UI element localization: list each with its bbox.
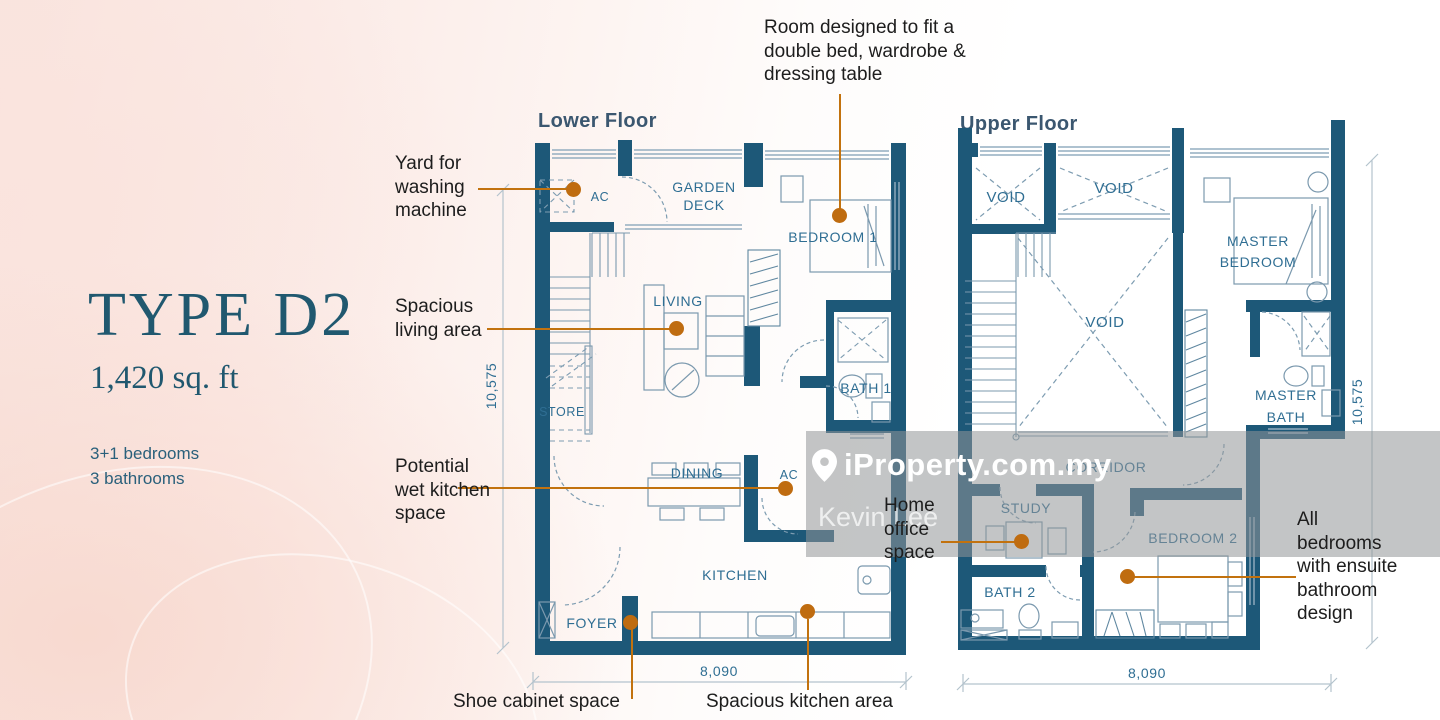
callout-dot-yard — [566, 182, 581, 197]
room-label-ac-kitchen: AC — [780, 468, 799, 482]
watermark-logo: iProperty.com.my — [812, 447, 1112, 483]
map-pin-icon — [812, 449, 837, 482]
annotation-wet-kitchen: Potential wet kitchen space — [395, 455, 495, 526]
callout-dot-shoe — [623, 615, 638, 630]
annotation-kitchen-area: Spacious kitchen area — [706, 690, 893, 714]
callout-line-kitchen-area — [807, 619, 809, 690]
dimension-width-lower: 8,090 — [700, 663, 738, 679]
room-label-master-bedroom: MASTER — [1227, 233, 1289, 249]
annotation-room-fit: Room designed to fit a double bed, wardr… — [764, 16, 976, 87]
floor-plan-lower: AC GARDEN DECK BEDROOM 1 LIVING STORE BA… — [483, 140, 912, 690]
room-label-master-bath: MASTER — [1255, 387, 1317, 403]
room-label-master-bath: BATH — [1267, 409, 1306, 425]
callout-dot-home-office — [1014, 534, 1029, 549]
callout-dot-wet-kitchen — [778, 481, 793, 496]
callout-dot-kitchen-area — [800, 604, 815, 619]
dimension-height-lower: 10,575 — [483, 363, 499, 409]
callout-line-yard — [478, 188, 568, 190]
room-label-garden-deck: DECK — [683, 197, 724, 213]
floorplan-page: TYPE D2 1,420 sq. ft 3+1 bedrooms 3 bath… — [0, 0, 1440, 720]
room-label-ac-yard: AC — [591, 190, 610, 204]
annotation-living: Spacious living area — [395, 295, 495, 342]
room-label-kitchen: KITCHEN — [702, 567, 768, 583]
callout-line-wet-kitchen — [458, 487, 780, 489]
room-label-bath1: BATH 1 — [840, 380, 892, 396]
callout-line-living — [487, 328, 671, 330]
callout-line-ensuite — [1134, 576, 1296, 578]
room-label-master-bedroom: BEDROOM — [1220, 254, 1297, 270]
annotation-yard: Yard for washing machine — [395, 152, 487, 223]
annotation-shoe: Shoe cabinet space — [453, 690, 620, 714]
room-label-foyer: FOYER — [566, 615, 617, 631]
room-label-living: LIVING — [653, 293, 703, 309]
callout-line-room-fit — [839, 94, 841, 210]
room-label-void3: VOID — [1085, 314, 1124, 331]
room-label-store: STORE — [539, 405, 585, 419]
dimension-width-upper: 8,090 — [1128, 665, 1166, 681]
floor-plans-drawing: AC GARDEN DECK BEDROOM 1 LIVING STORE BA… — [0, 0, 1440, 720]
callout-dot-bedroom1 — [832, 208, 847, 223]
room-label-void1: VOID — [986, 189, 1025, 206]
room-label-bath2: BATH 2 — [984, 584, 1036, 600]
room-label-void2: VOID — [1094, 180, 1133, 197]
callout-line-shoe — [631, 629, 633, 699]
room-label-dining: DINING — [671, 465, 724, 481]
room-label-bedroom1: BEDROOM 1 — [788, 229, 877, 245]
watermark-brand: iProperty.com.my — [844, 447, 1112, 483]
dimension-height-upper: 10,575 — [1349, 379, 1365, 425]
callout-dot-living — [669, 321, 684, 336]
annotation-ensuite: All bedrooms with ensuite bathroom desig… — [1297, 508, 1401, 626]
room-label-garden-deck: GARDEN — [672, 179, 736, 195]
annotation-home-office: Home office space — [884, 494, 959, 565]
callout-dot-ensuite — [1120, 569, 1135, 584]
